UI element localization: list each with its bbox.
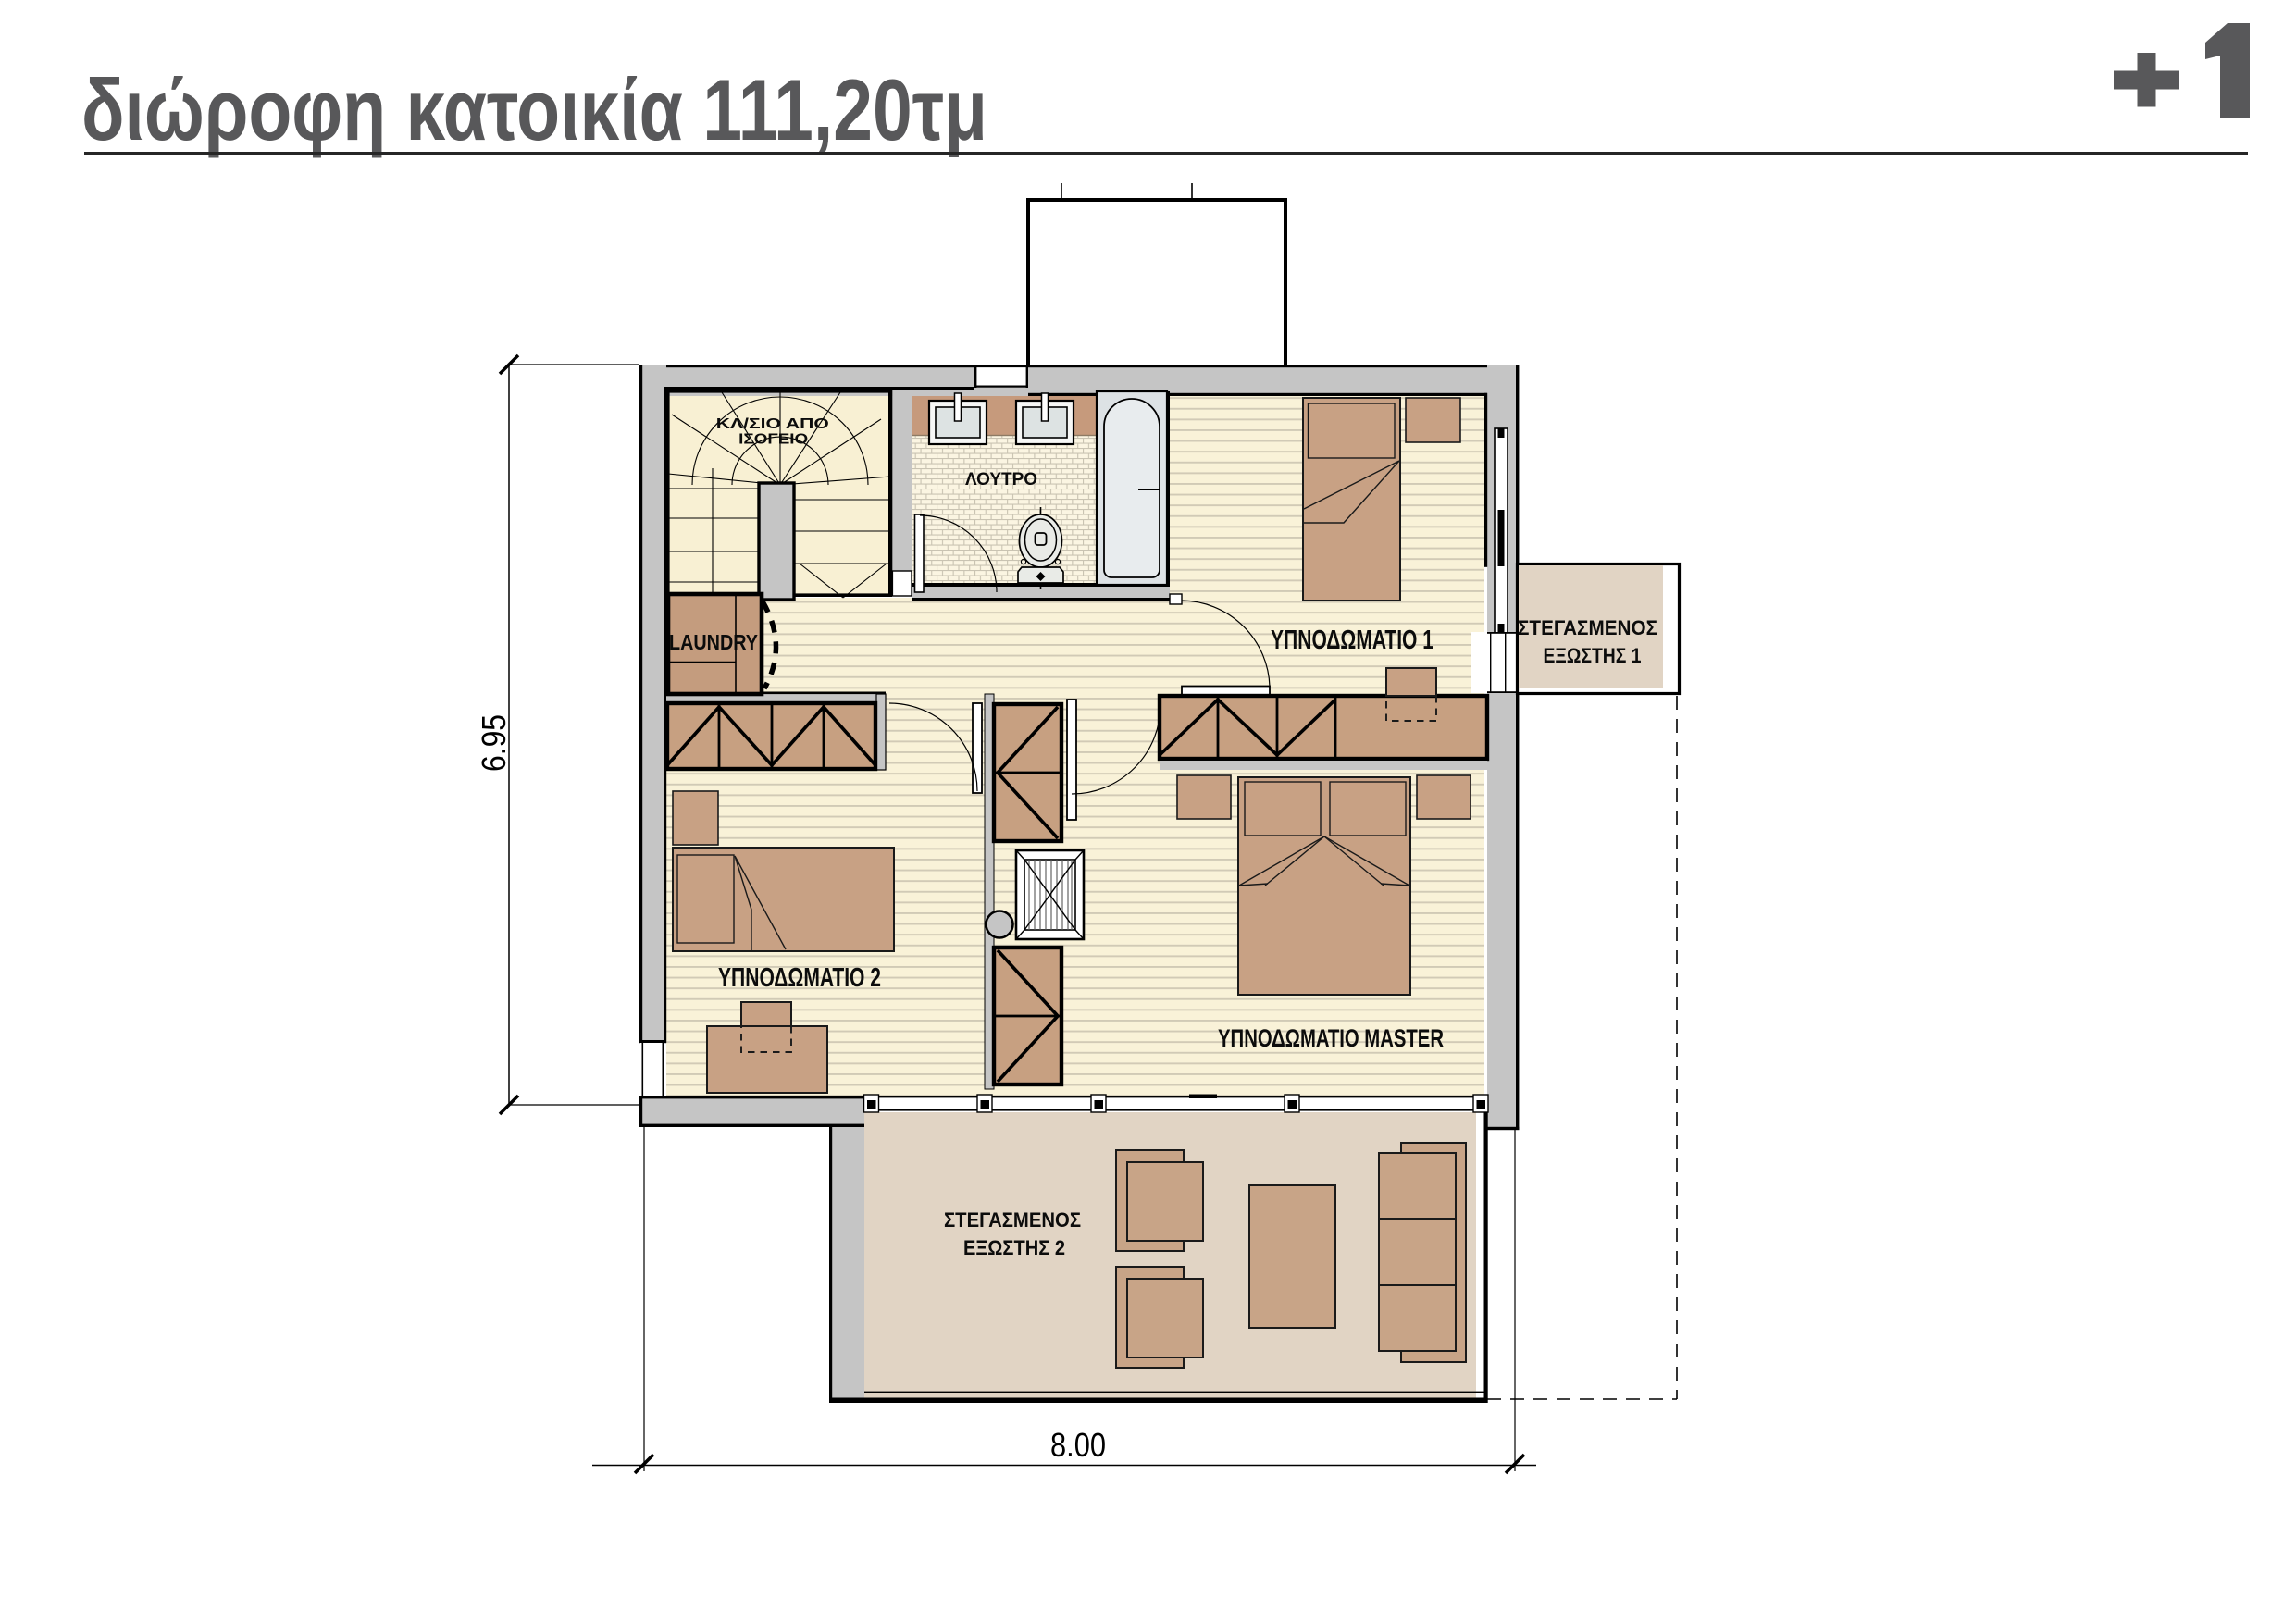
svg-text:διώροφη κατοικία 111,20τμ: διώροφη κατοικία 111,20τμ — [81, 61, 987, 158]
svg-text:ΛΟΥΤΡΟ: ΛΟΥΤΡΟ — [965, 469, 1037, 489]
svg-text:6.95: 6.95 — [475, 714, 513, 772]
svg-text:ΣΤΕΓΑΣΜΕΝΟΣ: ΣΤΕΓΑΣΜΕΝΟΣ — [944, 1208, 1081, 1232]
svg-text:ΕΞΩΣΤΗΣ 2: ΕΞΩΣΤΗΣ 2 — [963, 1236, 1065, 1259]
svg-text:ΥΠΝΟΔΩΜΑΤΙΟ 1: ΥΠΝΟΔΩΜΑΤΙΟ 1 — [1271, 626, 1433, 655]
svg-text:ΕΞΩΣΤΗΣ 1: ΕΞΩΣΤΗΣ 1 — [1544, 644, 1642, 667]
svg-text:LAUNDRY: LAUNDRY — [669, 630, 758, 654]
svg-text:ΣΤΕΓΑΣΜΕΝΟΣ: ΣΤΕΓΑΣΜΕΝΟΣ — [1518, 616, 1657, 639]
svg-text:ΥΠΝΟΔΩΜΑΤΙΟ 2: ΥΠΝΟΔΩΜΑΤΙΟ 2 — [718, 963, 881, 993]
svg-text:ΚΛ/ΣΙΟ ΑΠΟ: ΚΛ/ΣΙΟ ΑΠΟ — [716, 416, 829, 432]
svg-text:ΥΠΝΟΔΩΜΑΤΙΟ MASTER: ΥΠΝΟΔΩΜΑΤΙΟ MASTER — [1218, 1024, 1444, 1052]
svg-text:ΙΣΟΓΕΙΟ: ΙΣΟΓΕΙΟ — [738, 432, 808, 448]
svg-text:8.00: 8.00 — [1050, 1426, 1106, 1464]
